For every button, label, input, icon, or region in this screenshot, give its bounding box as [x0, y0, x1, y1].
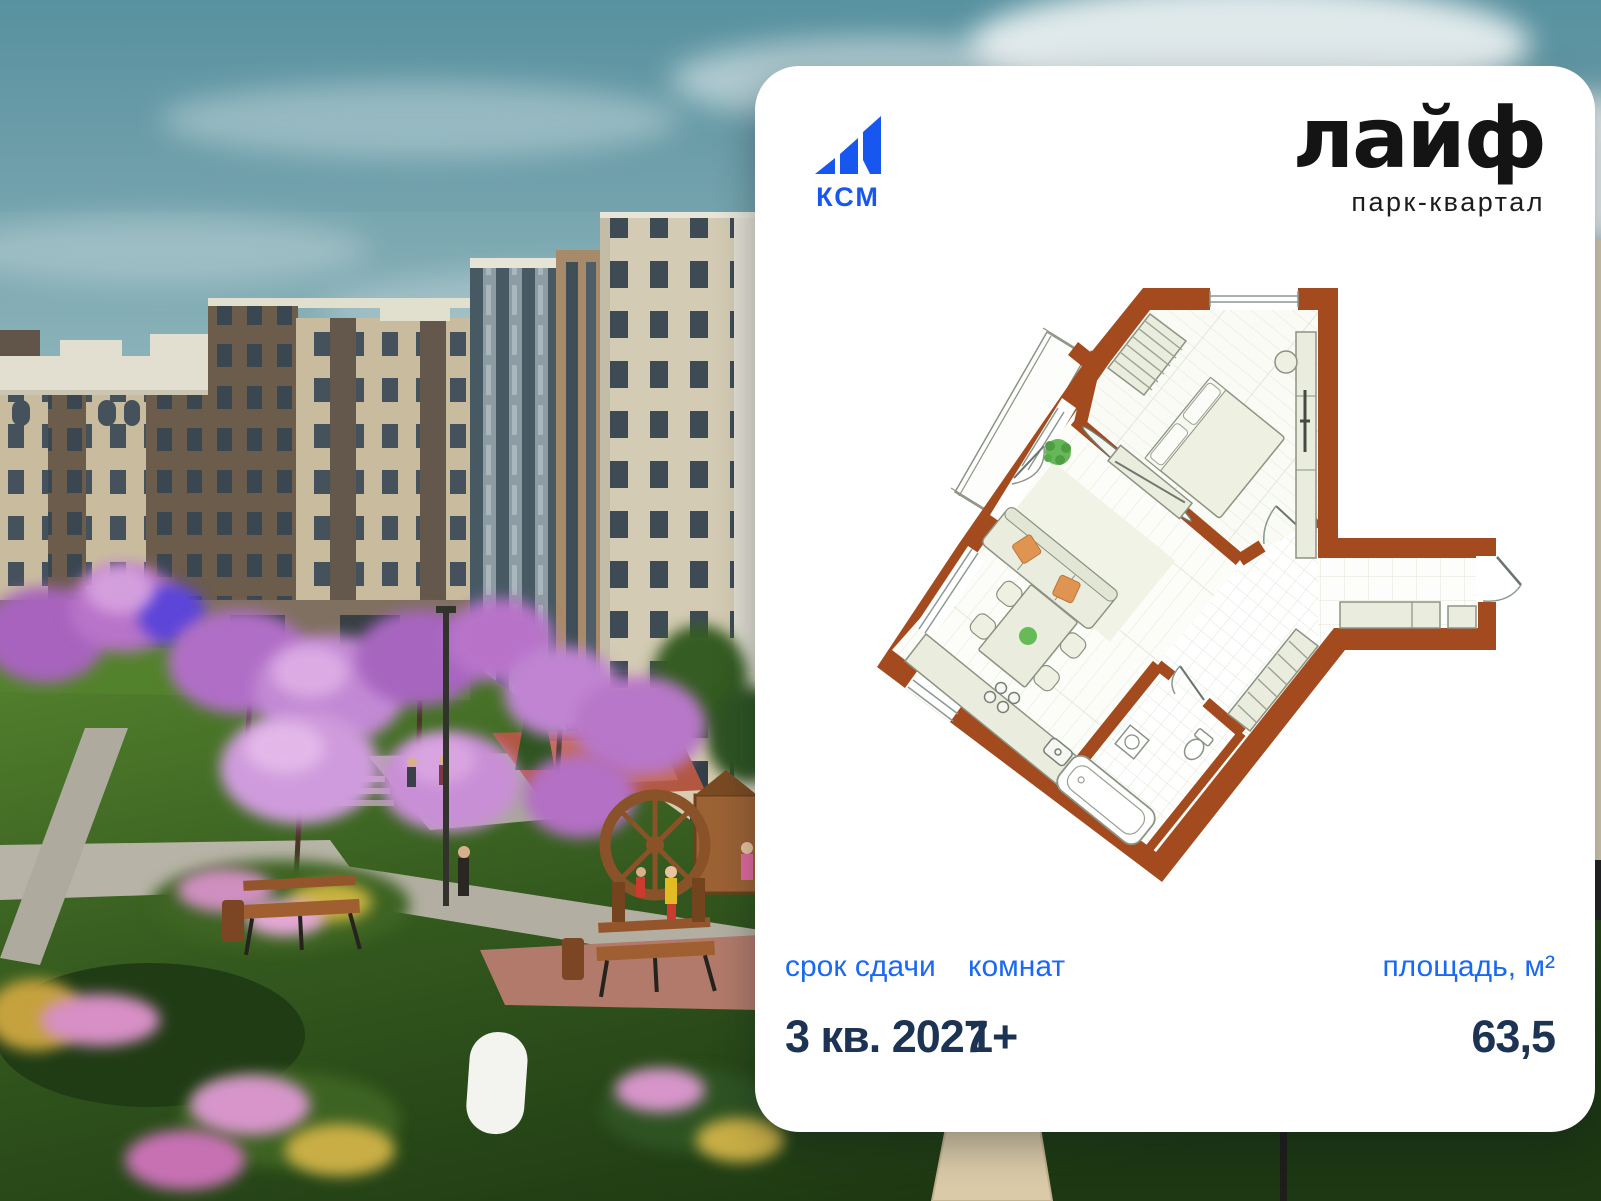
project-subtitle: парк-квартал — [1293, 187, 1545, 218]
stat-completion-label: срок сдачи — [785, 950, 988, 984]
white-curved-bench — [464, 1030, 529, 1136]
stat-rooms-value: 1+ — [968, 1011, 1065, 1063]
listing-card[interactable]: КСМ лайф парк-квартал — [755, 66, 1595, 1132]
project-title-block: лайф парк-квартал — [1293, 96, 1545, 218]
stat-area-label: площадь, м² — [1382, 950, 1555, 984]
trash-bin — [562, 938, 584, 980]
developer-name: КСМ — [793, 182, 903, 213]
project-title: лайф — [1293, 96, 1545, 180]
developer-logo: КСМ — [793, 112, 903, 213]
corridor-cabinets — [1340, 602, 1476, 628]
screenshot-root: КСМ лайф парк-квартал — [0, 0, 1601, 1201]
stat-rooms-label: комнат — [968, 950, 1065, 984]
entrance-opening — [1476, 556, 1498, 602]
floor-plan — [840, 260, 1540, 910]
stat-completion: срок сдачи 3 кв. 2027 — [785, 950, 988, 1063]
stat-area-value: 63,5 — [1382, 1011, 1555, 1063]
stat-area: площадь, м² 63,5 — [1382, 950, 1555, 1063]
trash-bin — [222, 900, 244, 942]
stat-completion-value: 3 кв. 2027 — [785, 1011, 988, 1063]
stat-rooms: комнат 1+ — [968, 950, 1065, 1063]
ksm-ascending-bars-icon — [813, 112, 883, 176]
desk-chair — [1275, 351, 1297, 373]
floor-plant — [1044, 439, 1071, 465]
